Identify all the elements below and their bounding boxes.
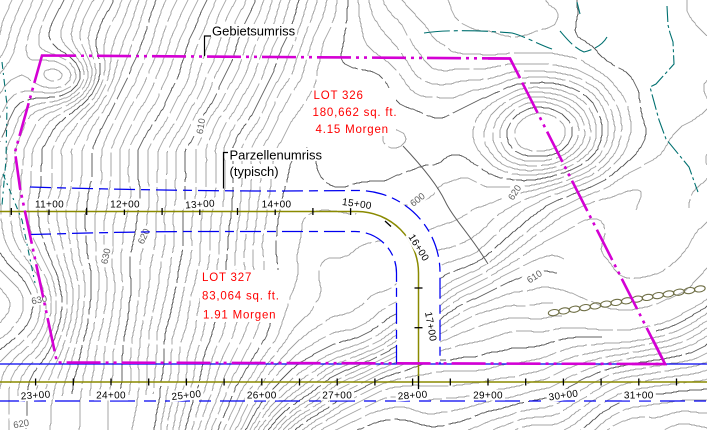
svg-text:12+00: 12+00 [110, 200, 140, 211]
svg-text:23+00: 23+00 [20, 389, 51, 402]
svg-text:180,662 sq. ft.: 180,662 sq. ft. [313, 107, 398, 119]
svg-text:Parzellenumriss: Parzellenumriss [230, 148, 323, 163]
svg-text:27+00: 27+00 [322, 391, 352, 402]
svg-text:83,064 sq. ft.: 83,064 sq. ft. [202, 291, 280, 303]
svg-text:28+00: 28+00 [397, 389, 428, 402]
svg-text:Gebietsumriss: Gebietsumriss [212, 24, 296, 39]
svg-text:14+00: 14+00 [262, 200, 292, 211]
svg-text:1.91 Morgen: 1.91 Morgen [203, 310, 276, 322]
svg-text:4.15 Morgen: 4.15 Morgen [316, 124, 389, 136]
svg-text:31+00: 31+00 [624, 391, 654, 402]
svg-text:(typisch): (typisch) [230, 164, 279, 179]
svg-text:26+00: 26+00 [247, 391, 277, 402]
svg-text:620: 620 [12, 418, 30, 430]
svg-text:LOT 327: LOT 327 [202, 272, 252, 284]
svg-text:11+00: 11+00 [35, 200, 64, 211]
svg-text:13+00: 13+00 [185, 198, 216, 211]
svg-text:LOT 326: LOT 326 [314, 90, 364, 102]
svg-text:29+00: 29+00 [473, 391, 503, 402]
svg-text:24+00: 24+00 [96, 391, 126, 402]
